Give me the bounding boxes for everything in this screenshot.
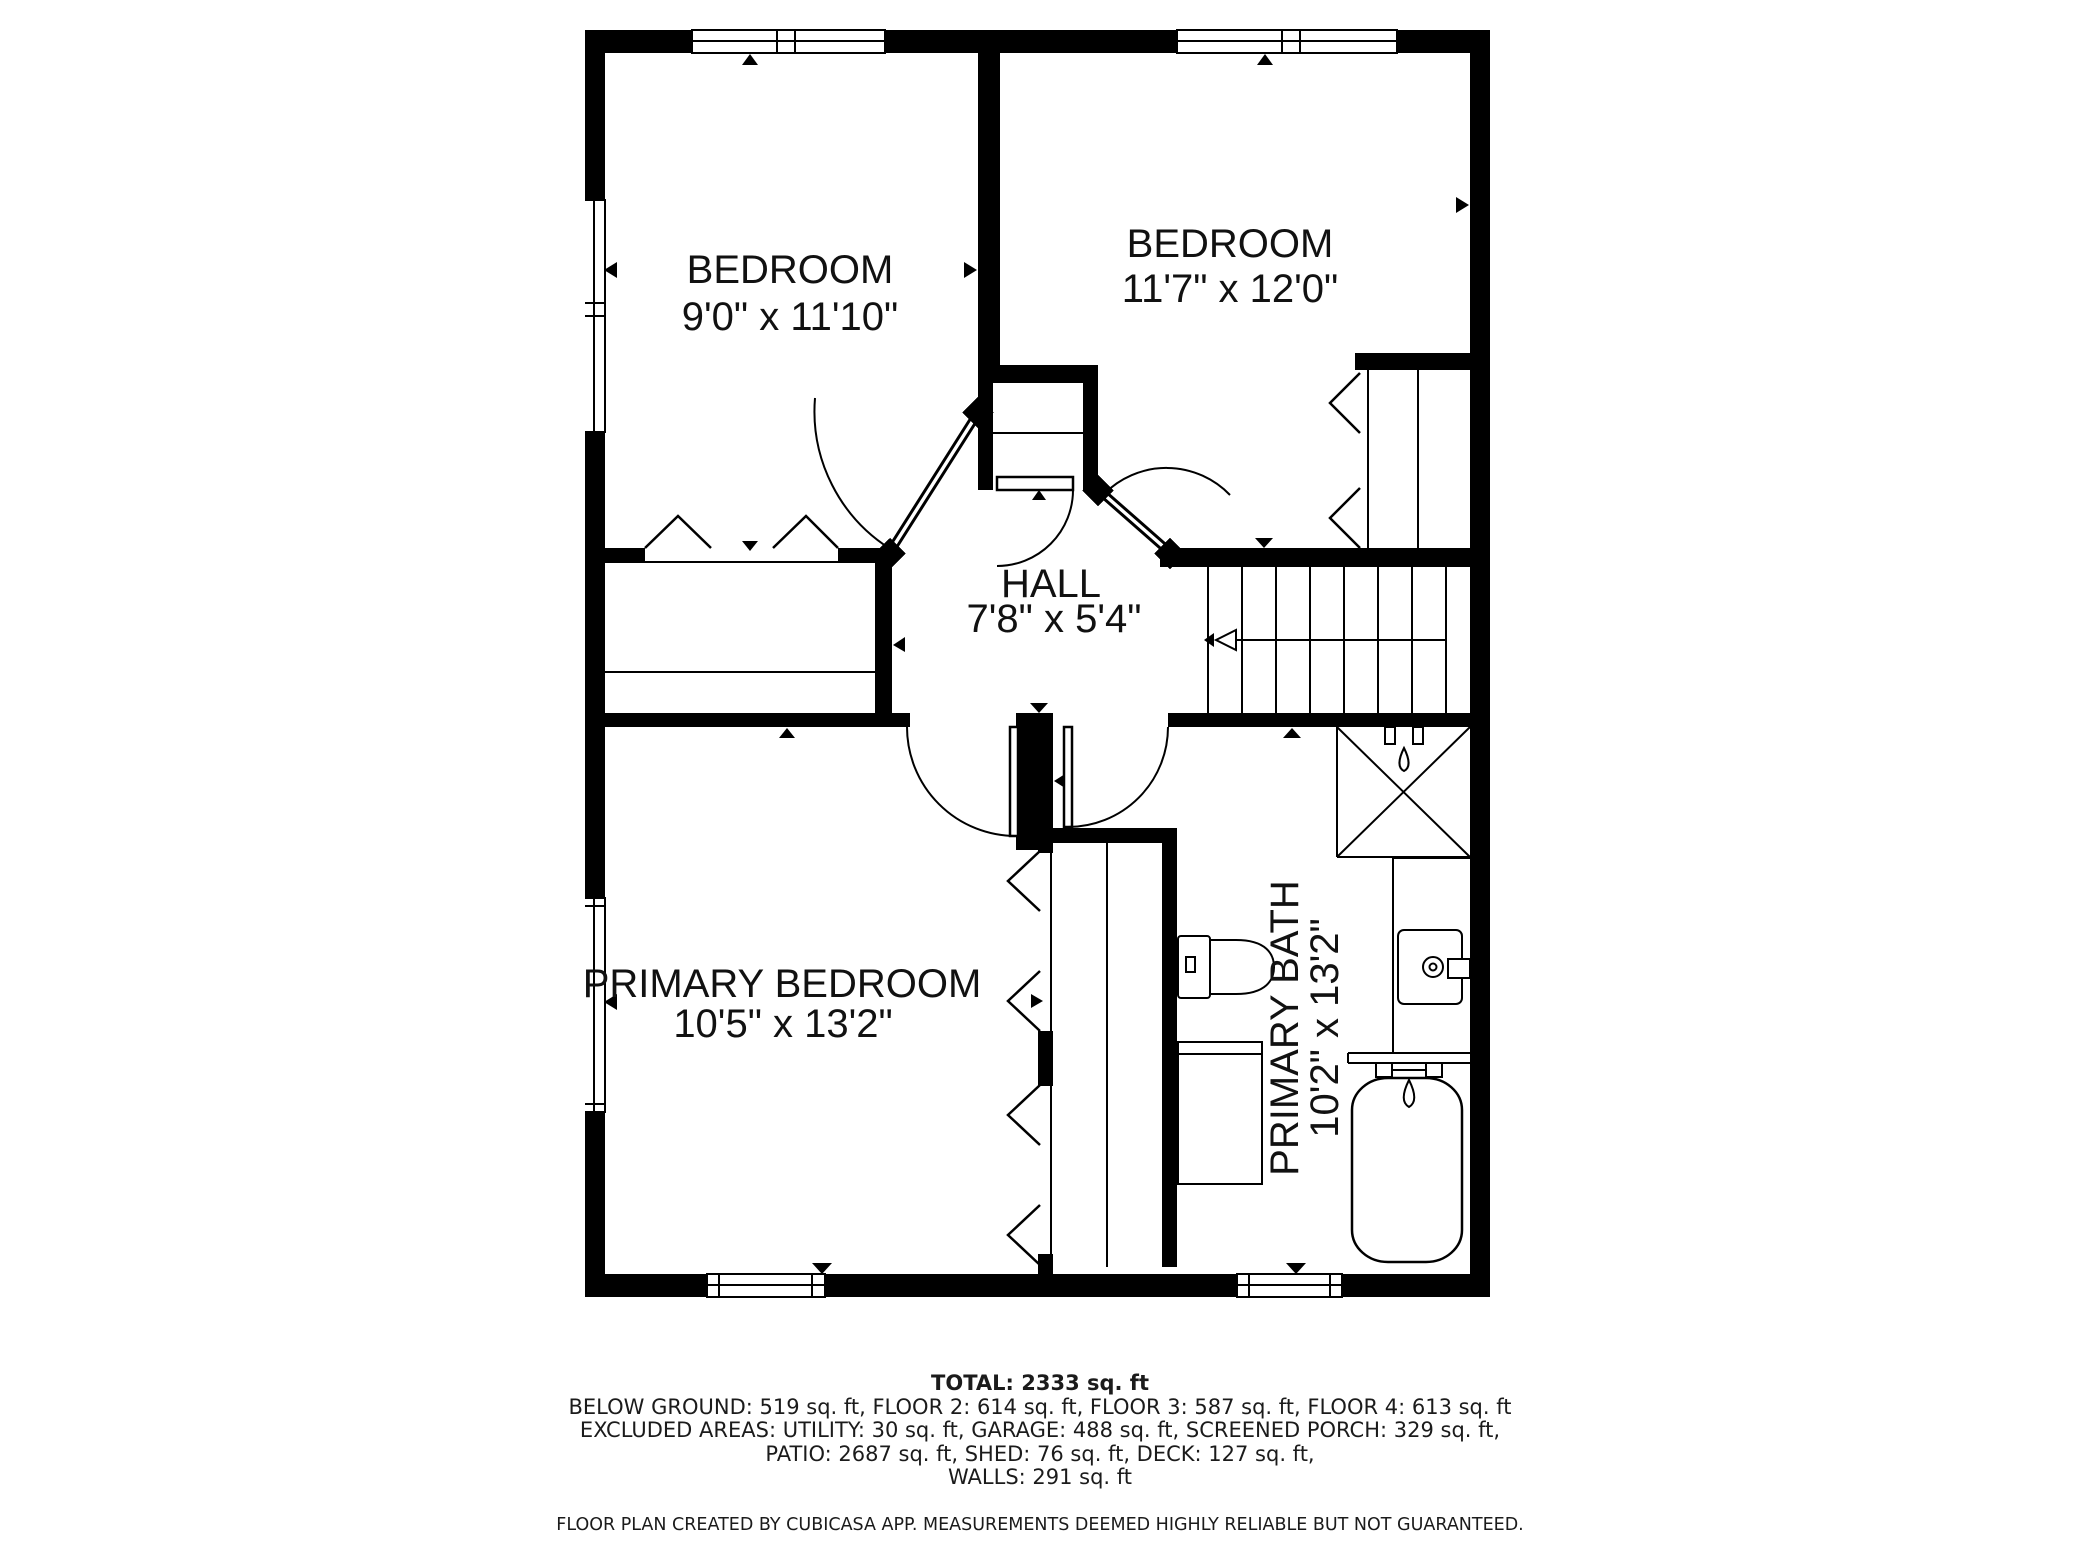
wall-hall-closet-top <box>978 365 1098 383</box>
wall-primary-closet-right <box>1162 843 1177 1267</box>
marker-triangle-icon <box>742 541 758 551</box>
shower-drop-icon <box>1400 748 1409 771</box>
shower-head-icon <box>1413 727 1423 744</box>
room-dims-hall: 7'8" x 5'4" <box>967 597 1142 641</box>
marker-triangle-icon <box>964 262 977 278</box>
primary-closet-bifold-icon <box>1008 1205 1040 1265</box>
wall-primary-closet-top <box>1053 828 1177 843</box>
summary-line: EXCLUDED AREAS: UTILITY: 30 sq. ft, GARA… <box>540 1419 1540 1443</box>
wall-primary-top <box>585 713 910 727</box>
marker-triangle-icon <box>893 637 905 652</box>
wall-closet1-right <box>875 548 892 727</box>
sink-counter <box>1393 858 1470 1053</box>
door-leaf-primary-bedroom <box>1010 727 1018 836</box>
shower-head-icon <box>1385 727 1395 744</box>
door-leaf-hall-closet <box>997 477 1073 490</box>
toilet-button <box>1186 957 1195 972</box>
tub-faucet-icon <box>1426 1063 1442 1077</box>
wall-stairs-bottom <box>1168 713 1490 727</box>
wall-bedroom1-bottom-left <box>585 548 645 563</box>
wall-stub-doors <box>1016 713 1053 850</box>
closet2-bifold-icon <box>1330 373 1360 433</box>
vanity-box <box>1178 1042 1262 1184</box>
wall-outer-right <box>1470 30 1490 1297</box>
marker-triangle-icon <box>1283 728 1301 738</box>
shower-pan <box>1337 727 1470 857</box>
wall-hall-closet-right <box>1083 383 1098 490</box>
marker-triangle-icon <box>1031 994 1043 1008</box>
closet2-bifold-icon <box>1330 488 1360 548</box>
floor-plan: BEDROOM 9'0" x 11'10" BEDROOM 11'7" x 12… <box>585 28 1495 1303</box>
marker-triangle-icon <box>1456 197 1469 213</box>
summary-line: BELOW GROUND: 519 sq. ft, FLOOR 2: 614 s… <box>540 1396 1540 1420</box>
room-dims-primary-bedroom: 10'5" x 13'2" <box>673 1002 892 1046</box>
sink-handle <box>1448 959 1470 978</box>
marker-triangle-icon <box>1257 54 1273 65</box>
stair-arrow-icon <box>1216 630 1236 650</box>
primary-closet-bifold-icon <box>1008 851 1040 911</box>
tub-faucet-icon <box>1376 1063 1392 1077</box>
wall-closet2-top <box>1355 353 1490 370</box>
marker-triangle-icon <box>812 1263 832 1274</box>
closet1-bifold-icon <box>645 516 711 548</box>
marker-triangle-icon <box>742 54 758 65</box>
door-arc-primary-bedroom <box>907 727 1016 836</box>
marker-triangle-icon <box>1054 774 1065 788</box>
marker-triangle-icon <box>1255 538 1273 548</box>
marker-triangle-icon <box>1286 1263 1306 1274</box>
summary-line: PATIO: 2687 sq. ft, SHED: 76 sq. ft, DEC… <box>540 1443 1540 1467</box>
shower <box>1337 727 1470 857</box>
door-arc-bedroom1 <box>814 398 892 550</box>
door-arc-bath <box>1068 727 1168 827</box>
room-dims-bedroom1: 9'0" x 11'10" <box>682 295 898 339</box>
room-dims-bedroom2: 11'7" x 12'0" <box>1122 267 1338 311</box>
marker-triangle-icon <box>1030 703 1048 713</box>
door-arc-bedroom2 <box>1104 468 1230 495</box>
tub-platform <box>1348 1053 1470 1063</box>
wall-bedroom-divider <box>978 50 1000 368</box>
marker-triangle-icon <box>779 728 795 738</box>
wall-stairs-top <box>1160 548 1490 567</box>
room-label-bedroom2: BEDROOM <box>1127 222 1334 266</box>
room-label-primary-bath: PRIMARY BATH <box>1263 880 1307 1176</box>
wall-hall-closet-left <box>978 383 993 490</box>
stairs <box>1204 567 1446 713</box>
door-leaf-bedroom1 <box>888 410 981 553</box>
toilet <box>1178 936 1274 998</box>
room-label-primary-bedroom: PRIMARY BEDROOM <box>585 962 981 1006</box>
room-dims-primary-bath: 10'2" x 13'2" <box>1303 918 1347 1137</box>
total-area: TOTAL: 2333 sq. ft <box>540 1372 1540 1396</box>
door-leaf-bath <box>1064 727 1072 827</box>
room-label-bedroom1: BEDROOM <box>687 248 894 292</box>
door-arc-hall-closet <box>997 490 1073 566</box>
door-leaf-bedroom2 <box>1102 492 1172 555</box>
room-labels: BEDROOM 9'0" x 11'10" BEDROOM 11'7" x 12… <box>585 222 1347 1176</box>
marker-triangle-icon <box>1032 490 1046 500</box>
primary-bath-label-group: PRIMARY BATH 10'2" x 13'2" <box>1263 880 1347 1176</box>
bathtub <box>1348 1053 1470 1262</box>
summary-line: WALLS: 291 sq. ft <box>540 1466 1540 1490</box>
vanity-cabinet <box>1178 1042 1262 1184</box>
primary-closet-bifold-icon <box>1008 1085 1040 1145</box>
area-summary: TOTAL: 2333 sq. ft BELOW GROUND: 519 sq.… <box>540 1372 1540 1537</box>
closet1-bifold-icon <box>773 516 838 548</box>
disclaimer: FLOOR PLAN CREATED BY CUBICASA APP. MEAS… <box>540 1514 1540 1538</box>
